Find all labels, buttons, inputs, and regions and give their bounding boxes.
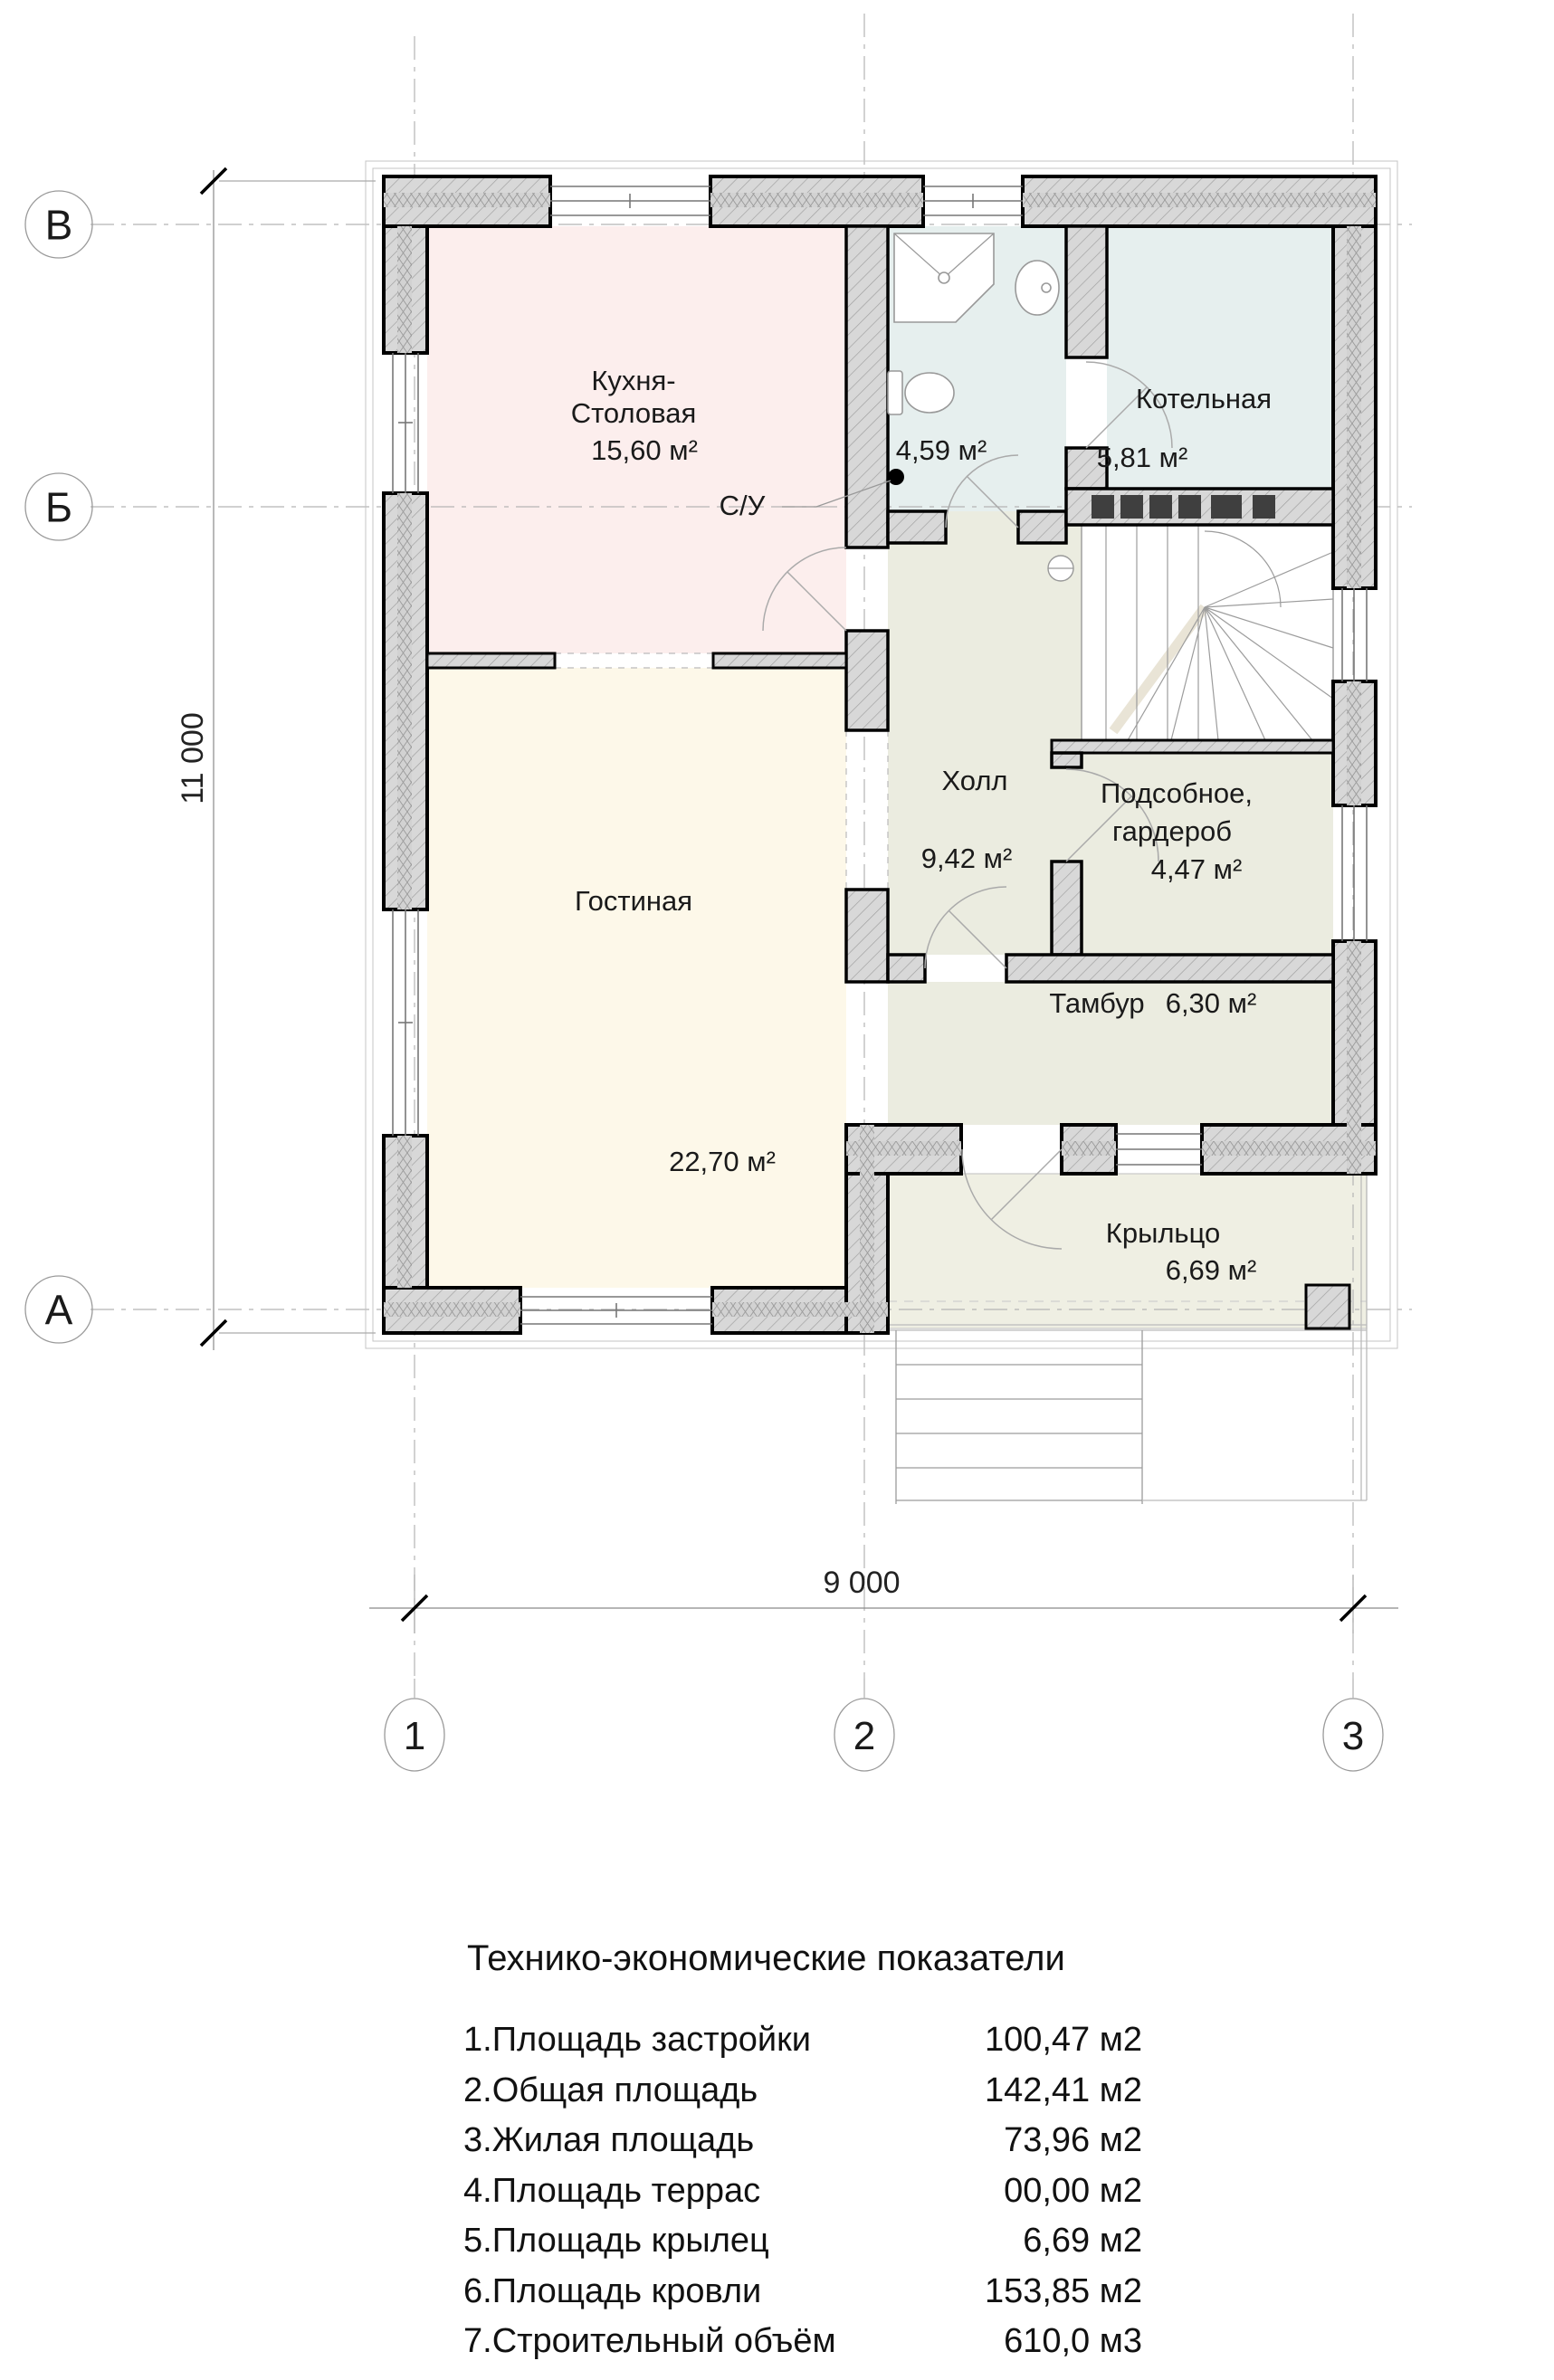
row-value: 00,00 м2	[1004, 2166, 1142, 2217]
dim-width-label: 9 000	[823, 1566, 900, 1600]
room-label-living: Гостиная	[575, 885, 692, 917]
window-tambour-bottom	[1116, 1134, 1202, 1165]
row-value: 142,41 м2	[985, 2066, 1142, 2117]
window-stairs-right	[1342, 588, 1367, 681]
dim-height-label: 11 000	[176, 712, 210, 804]
row-label: 4.Площадь террас	[463, 2166, 1004, 2217]
toilet-icon	[888, 371, 954, 414]
room-area-living: 22,70 м²	[669, 1146, 776, 1177]
row-value: 610,0 м3	[1004, 2317, 1142, 2367]
room-area-hall: 9,42 м²	[921, 843, 1013, 874]
axis-number-1: 1	[404, 1714, 425, 1758]
room-label-kitchen-2: Столовая	[571, 397, 697, 429]
room-label-boiler: Котельная	[1136, 383, 1272, 414]
table-row: 4.Площадь террас00,00 м2	[463, 2166, 1142, 2217]
table-title: Технико-экономические показатели	[467, 1938, 1151, 1979]
table-row: 2.Общая площадь142,41 м2	[463, 2066, 1142, 2117]
row-label: 6.Площадь кровли	[463, 2267, 985, 2318]
floor-plan-drawing: Кухня- Столовая 15,60 м² С/У 4,59 м² Кот…	[0, 0, 1554, 1801]
room-porch	[888, 1174, 1367, 1328]
room-label-pantry-2: гардероб	[1112, 815, 1232, 847]
room-area-porch: 6,69 м²	[1166, 1254, 1257, 1286]
table-row: 3.Жилая площадь73,96 м2	[463, 2116, 1142, 2166]
table-row: 7.Строительный объём610,0 м3	[463, 2317, 1142, 2367]
axis-number-2: 2	[853, 1714, 875, 1758]
room-label-tambour: Тамбур	[1049, 987, 1144, 1019]
wc-leader-dot	[888, 469, 904, 485]
room-living	[427, 668, 846, 1288]
porch-pillar	[1306, 1285, 1349, 1328]
axis-letter-v: В	[45, 202, 73, 249]
row-value: 73,96 м2	[1004, 2116, 1142, 2166]
row-label: 1.Площадь застройки	[463, 2015, 985, 2066]
window-living-bottom	[520, 1297, 712, 1324]
row-value: 100,47 м2	[985, 2015, 1142, 2066]
table-row: 6.Площадь кровли153,85 м2	[463, 2267, 1142, 2318]
window-wc-top	[923, 186, 1023, 215]
room-area-pantry: 4,47 м²	[1151, 853, 1243, 885]
room-label-porch: Крыльцо	[1106, 1217, 1220, 1249]
room-label-wc: С/У	[720, 490, 766, 521]
room-label-kitchen-1: Кухня-	[591, 365, 675, 396]
row-value: 153,85 м2	[985, 2267, 1142, 2318]
room-label-pantry-1: Подсобное,	[1101, 777, 1253, 809]
window-pantry-right	[1342, 805, 1367, 941]
tech-indicators-table: Технико-экономические показатели 1.Площа…	[463, 1938, 1151, 2367]
table-row: 5.Площадь крылец6,69 м2	[463, 2216, 1142, 2267]
room-area-wc: 4,59 м²	[896, 434, 987, 466]
room-label-hall: Холл	[941, 765, 1007, 796]
room-area-kitchen: 15,60 м²	[591, 434, 698, 466]
window-kitchen-top	[550, 186, 710, 215]
row-label: 5.Площадь крылец	[463, 2216, 1023, 2267]
row-label: 7.Строительный объём	[463, 2317, 1004, 2367]
room-area-boiler: 5,81 м²	[1097, 442, 1188, 473]
sink-icon	[1015, 261, 1059, 315]
table-row: 1.Площадь застройки100,47 м2	[463, 2015, 1142, 2066]
axis-letter-a: А	[45, 1287, 73, 1334]
room-area-tambour: 6,30 м²	[1166, 987, 1257, 1019]
row-label: 2.Общая площадь	[463, 2066, 985, 2117]
row-label: 3.Жилая площадь	[463, 2116, 1004, 2166]
row-value: 6,69 м2	[1023, 2216, 1142, 2267]
axis-number-3: 3	[1342, 1714, 1364, 1758]
axis-letter-b: Б	[45, 484, 72, 531]
